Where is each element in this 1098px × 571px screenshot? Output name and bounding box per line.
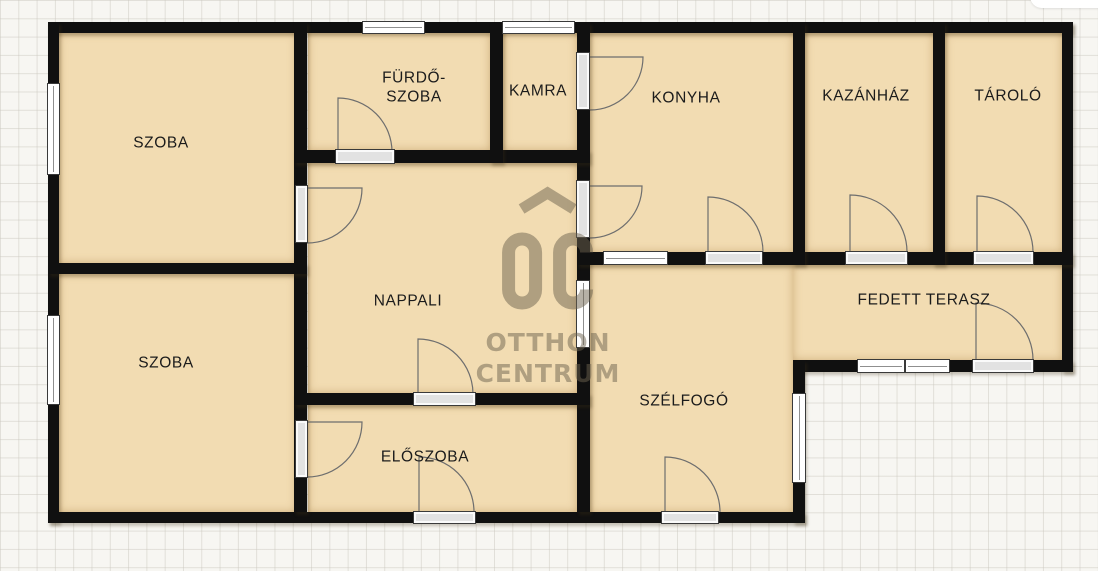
window-glass-line	[53, 86, 54, 172]
window-glass-line	[583, 283, 584, 345]
room-label-fedett-terasz: FEDETT TERASZ	[858, 290, 991, 309]
window-glass-line	[860, 366, 902, 367]
room-tarolo	[945, 33, 1062, 252]
window-nappali-szelfogo	[576, 280, 590, 348]
window-szelfogo-east	[792, 393, 806, 483]
window-terasz-2	[905, 359, 950, 373]
door-furdoszoba-opening	[335, 149, 395, 164]
room-label-kamra: KAMRA	[509, 81, 567, 100]
room-label-nappali: NAPPALI	[374, 291, 443, 310]
overlay-card-corner	[1030, 0, 1098, 8]
window-szoba-also-west	[47, 315, 60, 405]
window-furdoszoba-north	[362, 21, 425, 34]
wall-right	[1062, 22, 1073, 372]
door-tarolo-opening	[973, 251, 1034, 265]
window-szelfogo-north	[603, 251, 668, 265]
window-terasz-1	[857, 359, 905, 373]
door-konyha-opening	[705, 251, 763, 265]
door-szoba-also-eloszoba-opening	[295, 420, 308, 478]
door-nappali-eloszoba-opening	[413, 392, 476, 406]
wall-kazanhaz-tarolo	[933, 22, 945, 265]
door-kazanhaz-opening	[845, 251, 908, 265]
door-kamra-konyha-opening	[576, 52, 590, 110]
wall-furdo-kamra	[490, 22, 503, 163]
room-label-tarolo: TÁROLÓ	[974, 86, 1041, 105]
window-glass-line	[505, 27, 572, 28]
window-szoba-felso-west	[47, 83, 60, 175]
window-kamra-north	[502, 21, 575, 34]
wall-szoba-divider	[48, 263, 307, 274]
room-label-furdoszoba: FÜRDŐ- SZOBA	[382, 69, 446, 108]
room-kazanhaz	[805, 33, 933, 252]
room-label-kazanhaz: KAZÁNHÁZ	[822, 86, 909, 105]
room-label-konyha: KONYHA	[651, 88, 720, 107]
door-bejarat-szelfogo-opening	[661, 511, 719, 524]
door-bejarat-eloszoba-opening	[413, 511, 476, 524]
window-glass-line	[606, 258, 665, 259]
door-nappali-konyha-opening	[576, 180, 590, 238]
room-label-eloszoba: ELŐSZOBA	[381, 447, 469, 466]
window-glass-line	[908, 366, 947, 367]
room-label-szoba-also: SZOBA	[138, 353, 194, 372]
window-glass-line	[365, 27, 422, 28]
window-glass-line	[799, 396, 800, 480]
room-label-szoba-felso: SZOBA	[133, 133, 189, 152]
room-szoba-also	[59, 274, 296, 512]
door-szoba-felso-nappali-opening	[295, 185, 308, 243]
room-konyha	[590, 33, 793, 252]
window-glass-line	[53, 318, 54, 402]
room-label-szelfogo: SZÉLFOGÓ	[639, 391, 728, 410]
wall-konyha-kazanhaz	[793, 22, 805, 265]
floor-plan: OTTHON CENTRUM SZOBASZOBAFÜRDŐ- SZOBAKAM…	[0, 0, 1098, 571]
door-terasz-opening	[972, 359, 1034, 373]
room-fedett-terasz	[793, 265, 1062, 360]
room-nappali	[308, 163, 577, 393]
room-szelfogo	[590, 265, 793, 512]
